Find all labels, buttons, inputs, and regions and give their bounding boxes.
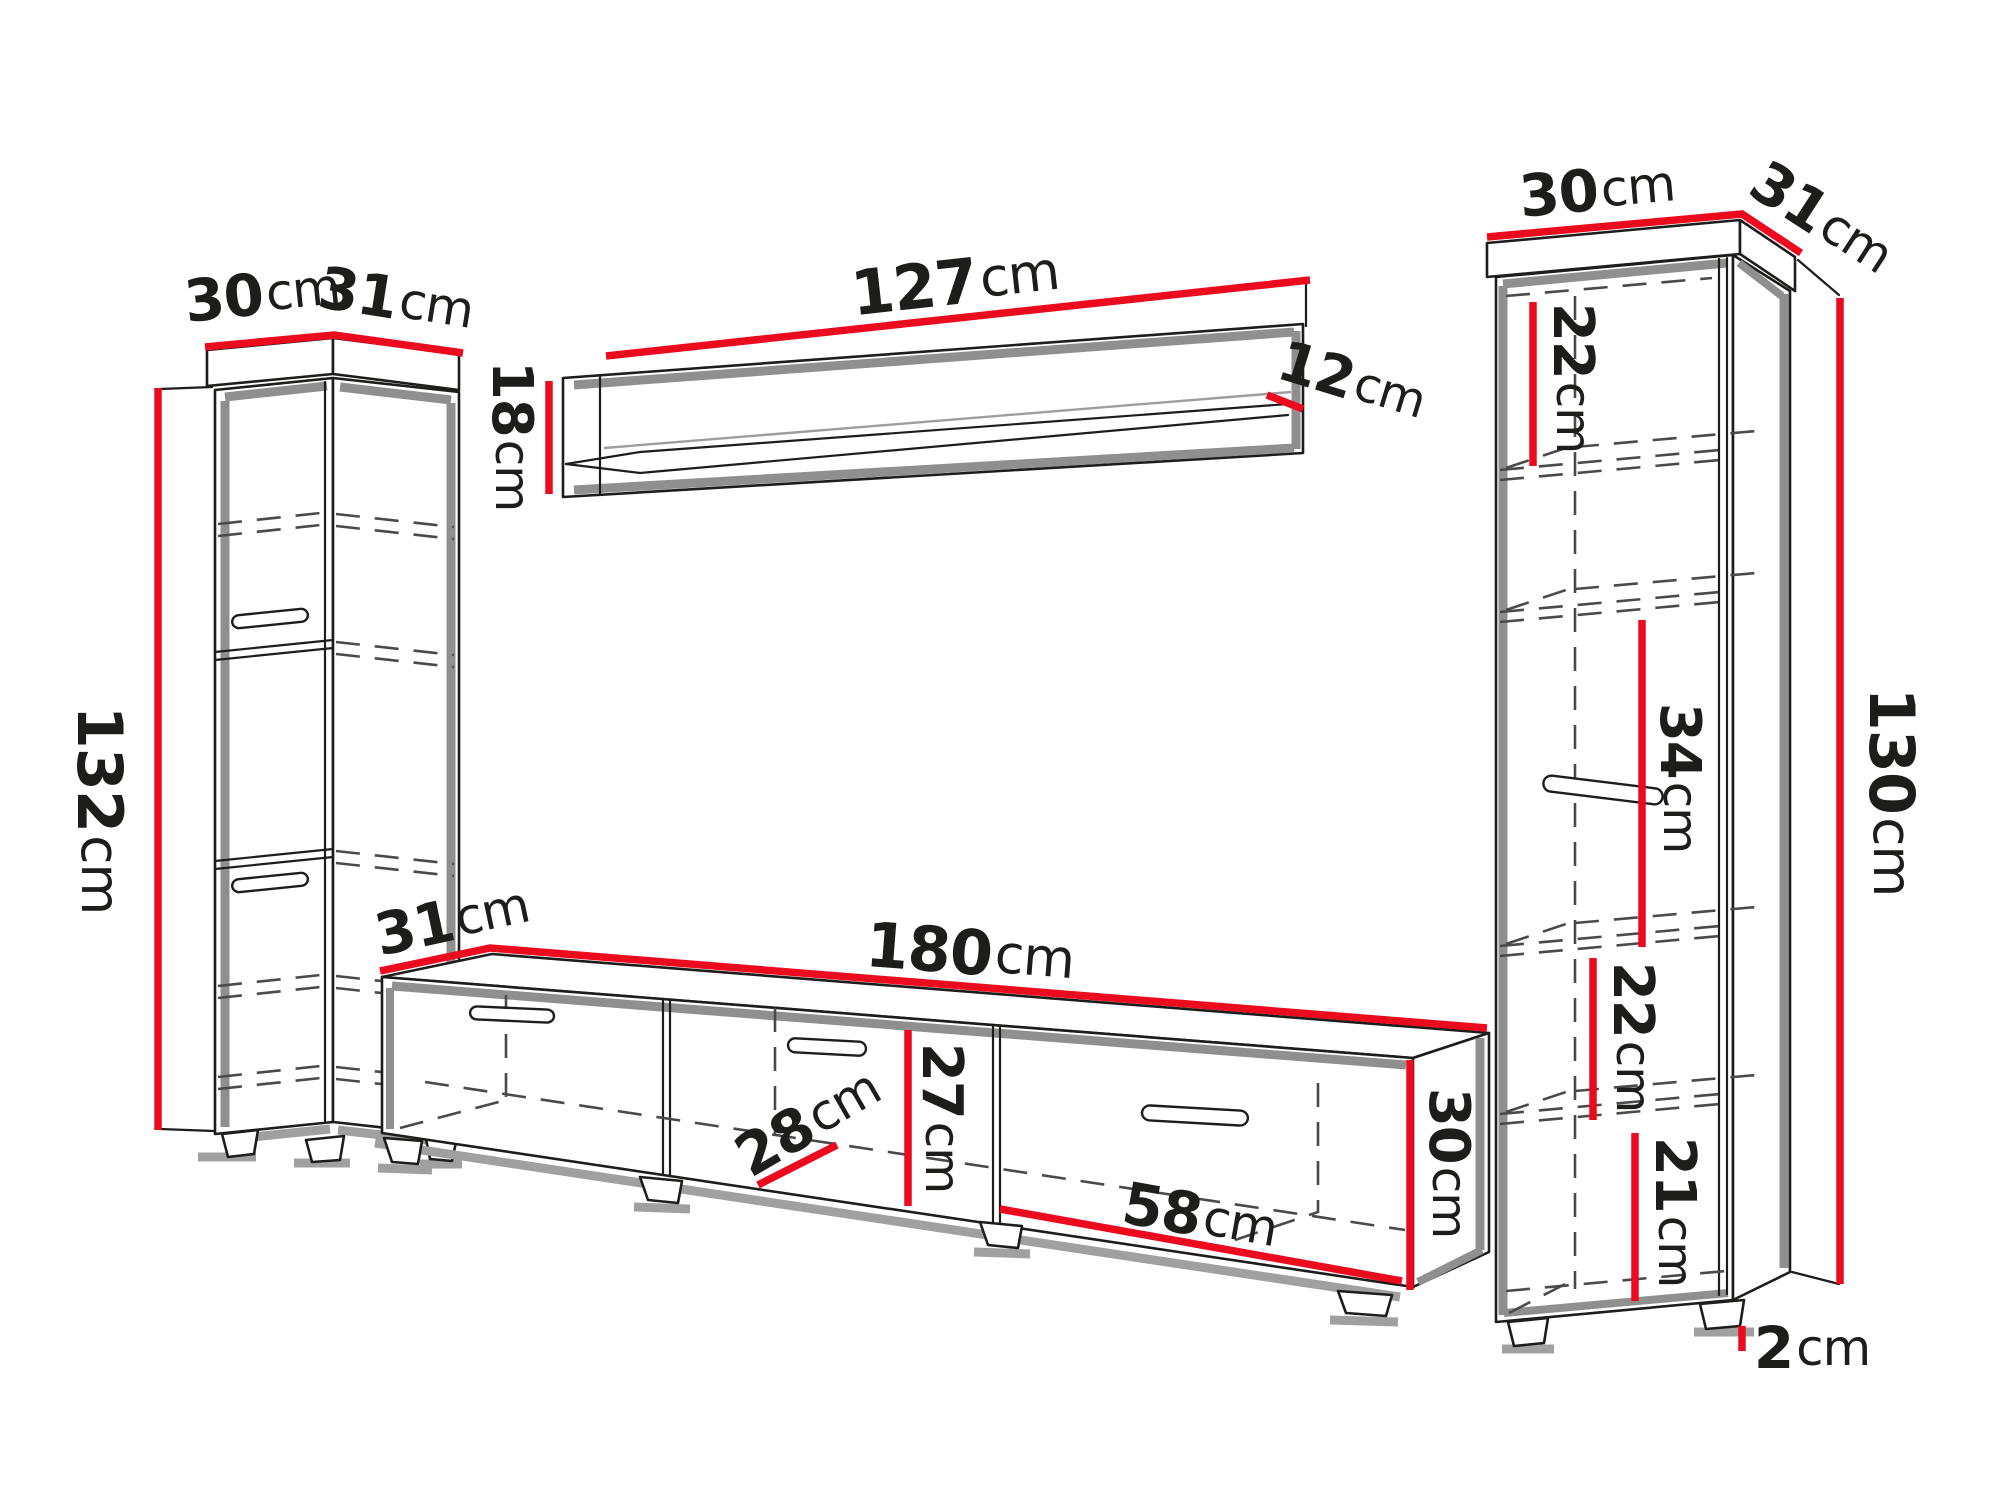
extension-line: [1798, 260, 1839, 295]
dim-label-right-section-bottom: 21cm: [1643, 1137, 1708, 1287]
extension-line: [160, 387, 212, 389]
dim-label-right-plinth: 2cm: [1754, 1314, 1870, 1382]
extension-line: [160, 1129, 214, 1131]
dim-label-left-height: 132cm: [64, 706, 137, 915]
dim-label-tv-inner-height: 27cm: [910, 1043, 975, 1193]
door-handle: [788, 1038, 867, 1056]
dim-label-tv-height: 30cm: [1417, 1088, 1482, 1238]
dim-label-shelf-width: 127cm: [847, 234, 1062, 329]
dim-label-right-section-middle: 34cm: [1648, 703, 1713, 853]
dim-label-right-section-lower: 22cm: [1601, 962, 1666, 1112]
tv-stand-drawing: 31cm 180cm 28cm 27cm 58cm 30cm: [369, 871, 1489, 1322]
dim-label-shelf-height: 18cm: [480, 361, 545, 511]
dim-label-right-height: 130cm: [1856, 688, 1929, 897]
extension-line: [1792, 1272, 1839, 1284]
door-handle: [470, 1006, 554, 1023]
dim-label-left-depth: 31cm: [314, 253, 478, 345]
diagram-canvas: 30cm 31cm 132cm 127cm 18cm 12cm: [0, 0, 2000, 1500]
dim-label-right-section-top: 22cm: [1541, 303, 1606, 453]
furniture-dimension-diagram: 30cm 31cm 132cm 127cm 18cm 12cm: [0, 0, 2000, 1500]
left-cabinet-front-face: [215, 378, 333, 1134]
right-cabinet-drawing: 30cm 31cm 22cm 34cm 22cm 21cm 130cm 2cm: [1487, 147, 1929, 1382]
wall-shelf-drawing: 127cm 18cm 12cm: [480, 234, 1434, 511]
